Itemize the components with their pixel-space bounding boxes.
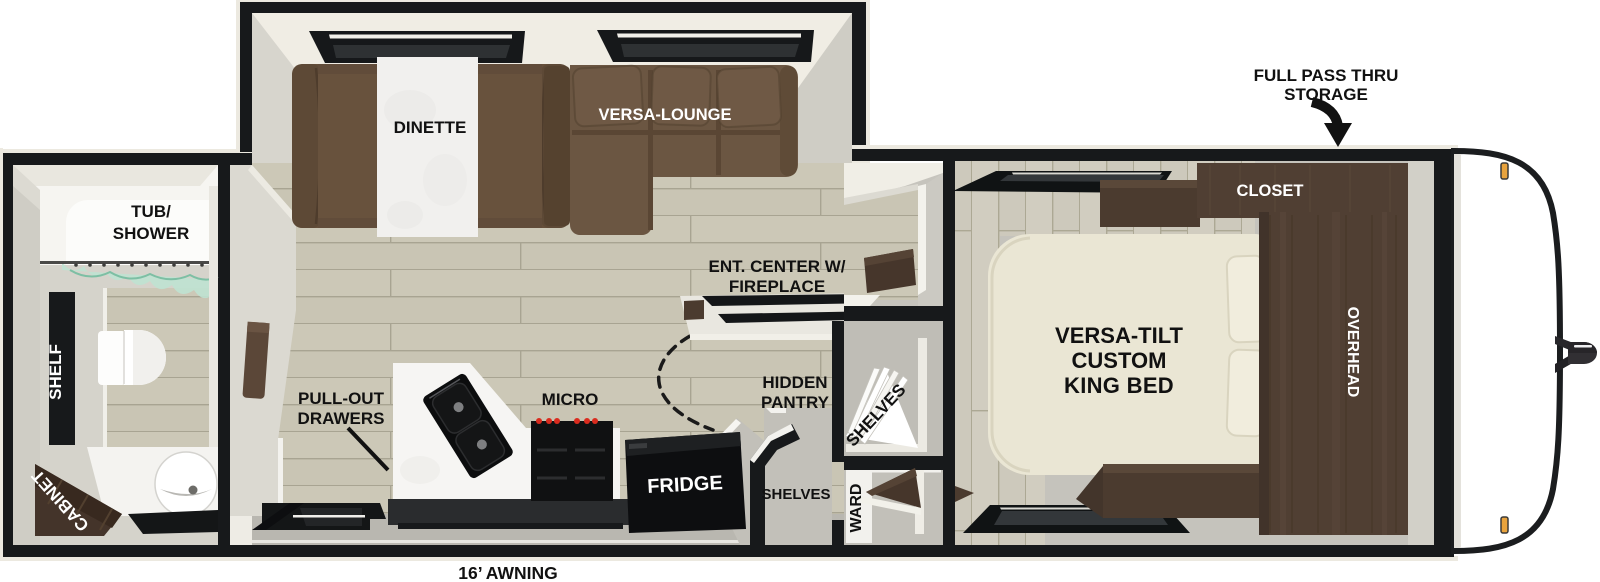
svg-text:WARD: WARD [848,484,865,533]
svg-text:VERSA-TILT: VERSA-TILT [1055,323,1183,348]
svg-text:VERSA-LOUNGE: VERSA-LOUNGE [599,106,732,124]
svg-text:PULL-OUT: PULL-OUT [298,389,385,408]
svg-text:16’ AWNING: 16’ AWNING [458,563,558,582]
svg-text:STORAGE: STORAGE [1284,85,1368,104]
svg-text:SHELVES: SHELVES [762,486,831,503]
svg-text:FIREPLACE: FIREPLACE [729,277,825,296]
svg-text:PANTRY: PANTRY [761,393,830,412]
svg-text:DRAWERS: DRAWERS [298,409,385,428]
svg-text:FRIDGE: FRIDGE [647,472,724,498]
svg-text:MICRO: MICRO [542,390,599,409]
svg-text:KING BED: KING BED [1064,373,1174,398]
svg-text:DINETTE: DINETTE [394,118,467,137]
svg-text:CUSTOM: CUSTOM [1072,348,1167,373]
svg-text:FULL PASS THRU: FULL PASS THRU [1254,66,1399,85]
svg-text:TUB/: TUB/ [131,202,171,221]
svg-text:SHOWER: SHOWER [113,224,190,243]
svg-text:SHELF: SHELF [46,344,65,400]
svg-text:CLOSET: CLOSET [1237,182,1304,200]
svg-text:HIDDEN: HIDDEN [762,373,827,392]
svg-text:ENT. CENTER W/: ENT. CENTER W/ [709,257,846,276]
svg-text:OVERHEAD: OVERHEAD [1344,307,1361,398]
